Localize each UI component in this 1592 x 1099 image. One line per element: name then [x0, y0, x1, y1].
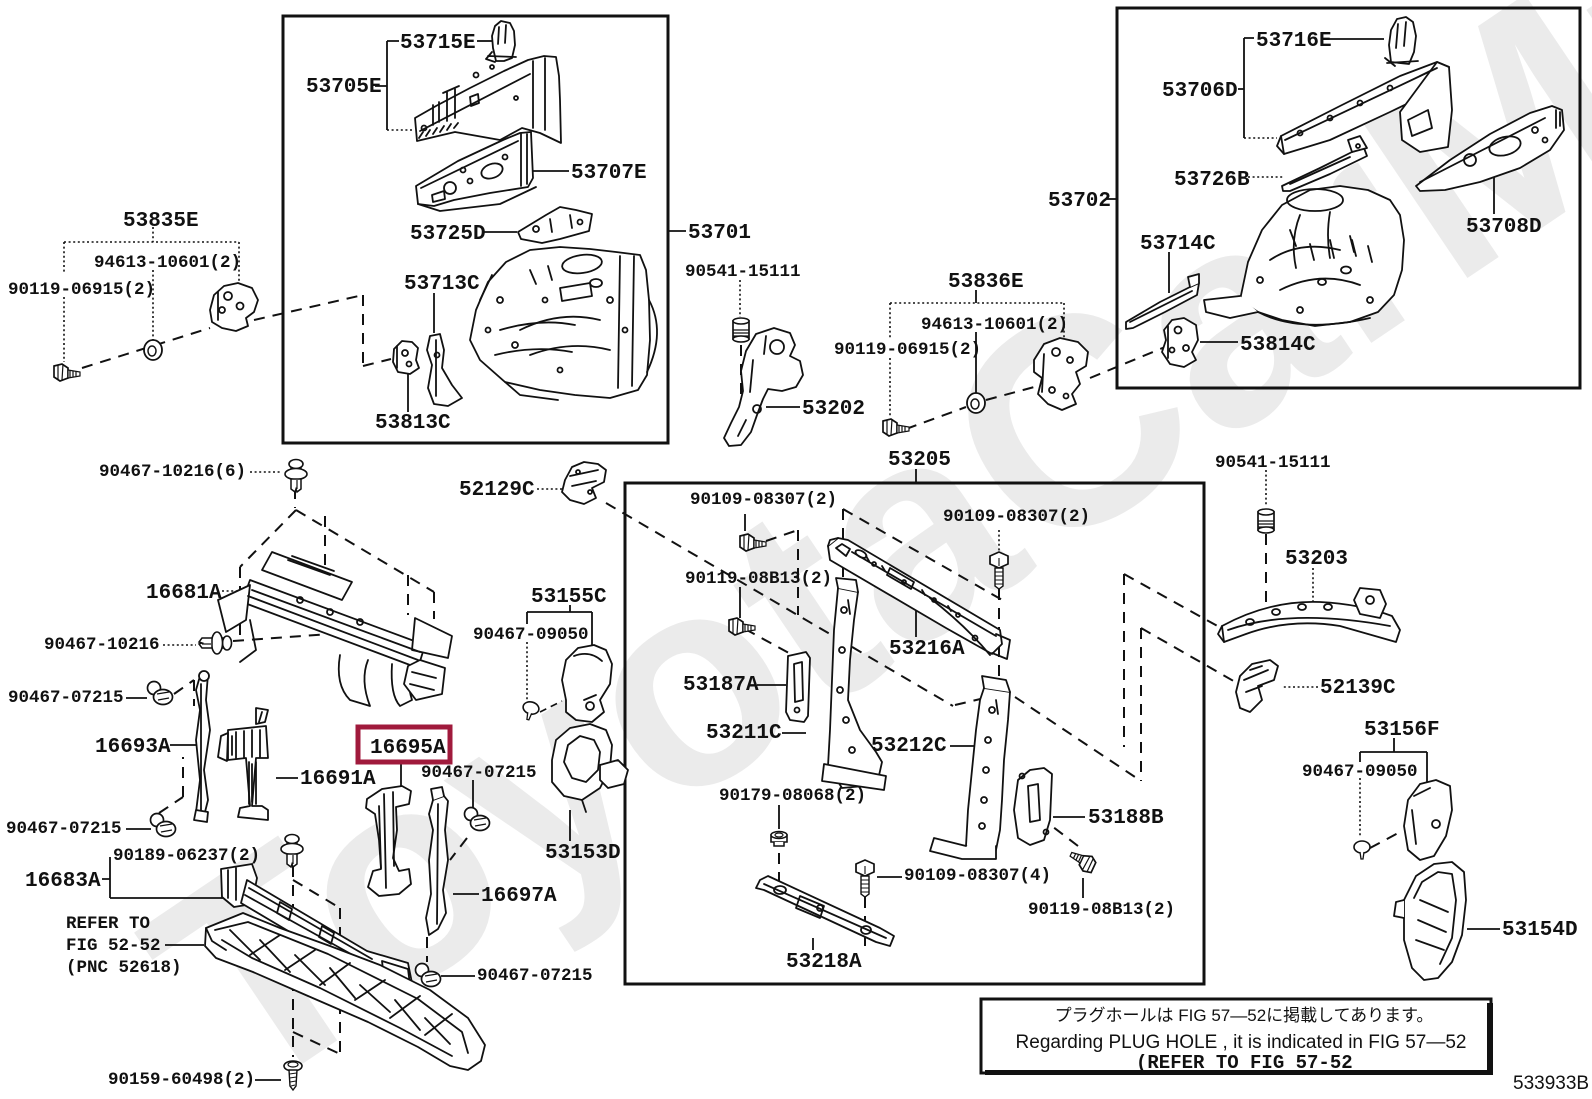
svg-text:90109-08307(2): 90109-08307(2)	[690, 490, 837, 510]
svg-text:90119-08B13(2): 90119-08B13(2)	[685, 569, 832, 589]
svg-text:94613-10601(2): 94613-10601(2)	[921, 315, 1068, 335]
svg-text:16695A: 16695A	[370, 737, 446, 760]
svg-text:53202: 53202	[802, 398, 865, 421]
svg-text:90467-09050: 90467-09050	[1302, 762, 1418, 782]
svg-text:REFER TO: REFER TO	[66, 914, 150, 934]
svg-text:90467-10216: 90467-10216	[44, 635, 160, 655]
svg-text:53216A: 53216A	[889, 638, 965, 661]
svg-text:53708D: 53708D	[1466, 216, 1542, 239]
svg-text:53814C: 53814C	[1240, 334, 1316, 357]
svg-text:90189-06237(2): 90189-06237(2)	[113, 846, 260, 866]
svg-text:53716E: 53716E	[1256, 30, 1332, 53]
svg-text:53187A: 53187A	[683, 674, 759, 697]
svg-text:53153D: 53153D	[545, 842, 621, 865]
svg-text:90119-06915(2): 90119-06915(2)	[834, 340, 981, 360]
svg-text:90467-09050: 90467-09050	[473, 625, 589, 645]
svg-text:90119-08B13(2): 90119-08B13(2)	[1028, 900, 1175, 920]
svg-text:90467-07215: 90467-07215	[8, 688, 124, 708]
svg-text:53706D: 53706D	[1162, 80, 1238, 103]
svg-text:90467-07215: 90467-07215	[6, 819, 122, 839]
svg-text:53713C: 53713C	[404, 273, 480, 296]
svg-text:533933B: 533933B	[1513, 1073, 1589, 1094]
svg-text:Regarding PLUG HOLE , it is: Regarding PLUG HOLE , it is indicated in…	[1016, 1032, 1467, 1053]
svg-text:53836E: 53836E	[948, 271, 1024, 294]
svg-text:53212C: 53212C	[871, 735, 947, 758]
svg-text:FIG 52-52: FIG 52-52	[66, 936, 161, 956]
svg-text:53211C: 53211C	[706, 722, 782, 745]
svg-text:53813C: 53813C	[375, 412, 451, 435]
svg-text:90109-08307(2): 90109-08307(2)	[943, 507, 1090, 527]
svg-text:(REFER TO FIG 57-52: (REFER TO FIG 57-52	[1136, 1052, 1353, 1074]
svg-text:94613-10601(2): 94613-10601(2)	[94, 253, 241, 273]
svg-text:90467-07215: 90467-07215	[477, 966, 593, 986]
svg-text:90467-07215: 90467-07215	[421, 763, 537, 783]
svg-text:53701: 53701	[688, 222, 751, 245]
svg-text:90541-15111: 90541-15111	[685, 262, 801, 282]
svg-text:90467-10216(6): 90467-10216(6)	[99, 462, 246, 482]
svg-text:53726B: 53726B	[1174, 169, 1250, 192]
svg-text:プラグホールは FIG 57—52に掲載してあります。: プラグホールは FIG 57—52に掲載してあります。	[1055, 1006, 1434, 1025]
svg-text:16683A: 16683A	[25, 870, 101, 893]
svg-text:16681A: 16681A	[146, 582, 222, 605]
svg-text:52129C: 52129C	[459, 479, 535, 502]
svg-text:53714C: 53714C	[1140, 233, 1216, 256]
svg-text:53725D: 53725D	[410, 223, 486, 246]
svg-text:16697A: 16697A	[481, 885, 557, 908]
svg-text:52139C: 52139C	[1320, 677, 1396, 700]
svg-text:16693A: 16693A	[95, 736, 171, 759]
svg-text:53715E: 53715E	[400, 32, 476, 55]
svg-text:90159-60498(2): 90159-60498(2)	[108, 1070, 255, 1090]
svg-text:53203: 53203	[1285, 548, 1348, 571]
svg-text:53154D: 53154D	[1502, 919, 1578, 942]
svg-text:53702: 53702	[1048, 190, 1111, 213]
svg-text:53705E: 53705E	[306, 76, 382, 99]
svg-text:53205: 53205	[888, 449, 951, 472]
svg-text:90109-08307(4): 90109-08307(4)	[904, 866, 1051, 886]
svg-text:53218A: 53218A	[786, 951, 862, 974]
svg-text:(PNC 52618): (PNC 52618)	[66, 958, 182, 978]
svg-text:90179-08068(2): 90179-08068(2)	[719, 786, 866, 806]
svg-text:53707E: 53707E	[571, 162, 647, 185]
svg-text:53188B: 53188B	[1088, 807, 1164, 830]
svg-text:53155C: 53155C	[531, 586, 607, 609]
svg-text:90119-06915(2): 90119-06915(2)	[8, 280, 155, 300]
svg-text:16691A: 16691A	[300, 768, 376, 791]
svg-text:53156F: 53156F	[1364, 719, 1440, 742]
svg-text:53835E: 53835E	[123, 210, 199, 233]
svg-text:90541-15111: 90541-15111	[1215, 453, 1331, 473]
